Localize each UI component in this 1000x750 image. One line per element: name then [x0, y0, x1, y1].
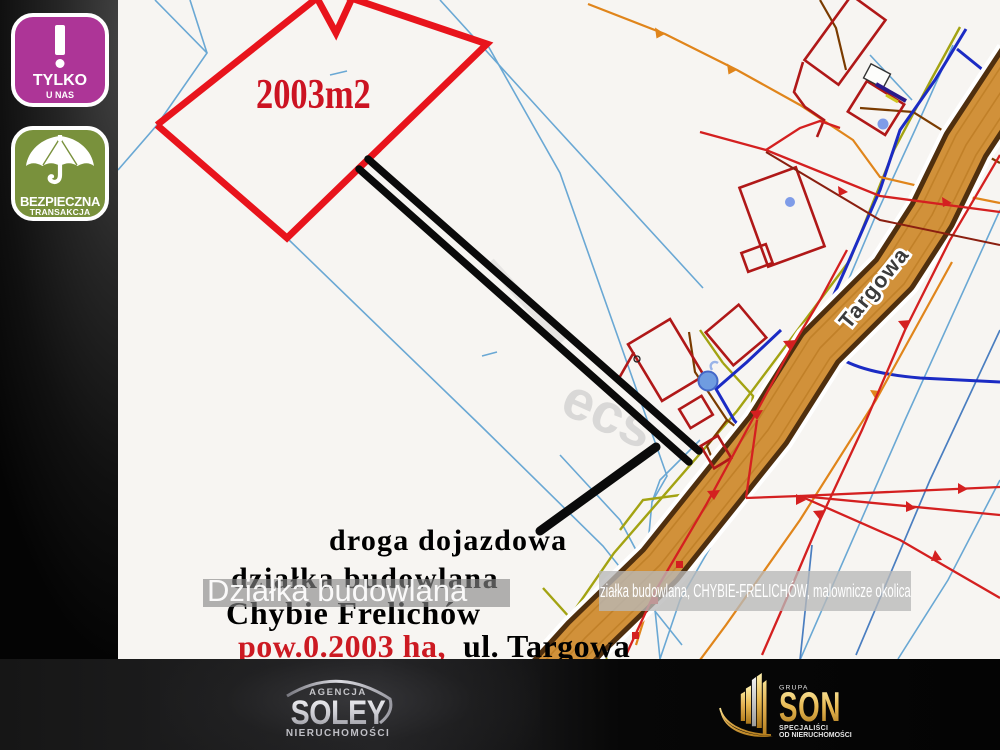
svg-text:NIERUCHOMOŚCI: NIERUCHOMOŚCI	[286, 726, 390, 739]
svg-text:ecs: ecs	[553, 365, 664, 461]
svg-text:SOLEY: SOLEY	[291, 694, 386, 732]
svg-text:OD NIERUCHOMOŚCI: OD NIERUCHOMOŚCI	[779, 730, 852, 739]
svg-text:2003m2: 2003m2	[256, 72, 371, 118]
svg-text:SON: SON	[779, 683, 841, 730]
svg-text:SPECJALIŚCI: SPECJALIŚCI	[779, 723, 828, 732]
